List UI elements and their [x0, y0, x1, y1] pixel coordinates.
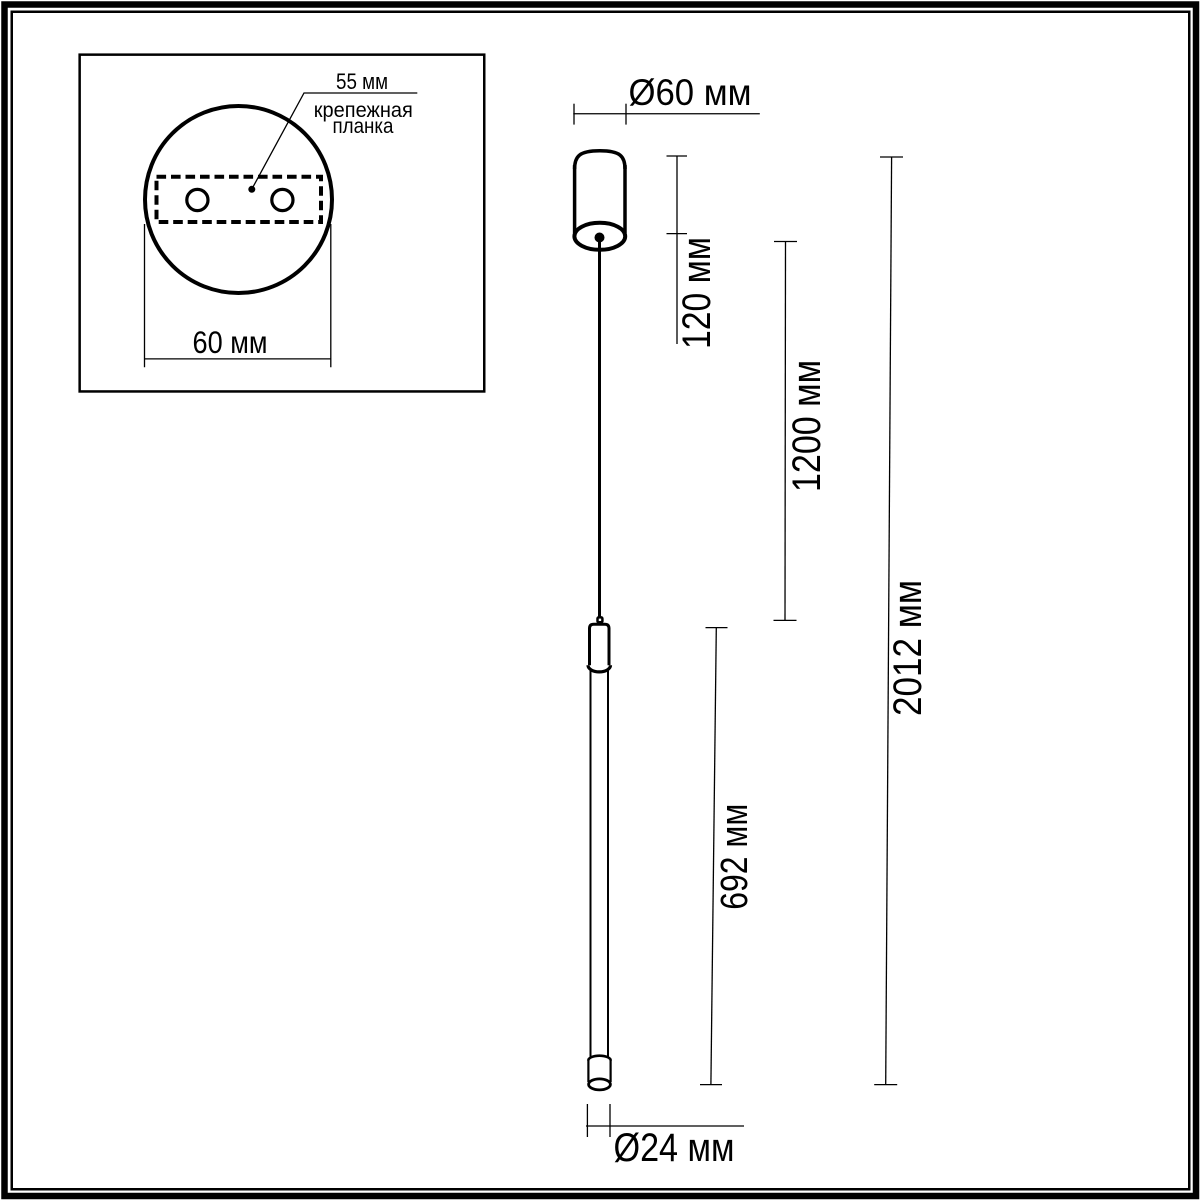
- svg-text:планка: планка: [333, 114, 394, 138]
- svg-text:120 мм: 120 мм: [675, 237, 719, 349]
- svg-text:1200 мм: 1200 мм: [785, 360, 829, 492]
- svg-text:55 мм: 55 мм: [336, 69, 388, 94]
- svg-text:692 мм: 692 мм: [714, 804, 756, 910]
- svg-text:60 мм: 60 мм: [193, 324, 268, 360]
- svg-text:Ø24 мм: Ø24 мм: [614, 1126, 735, 1170]
- svg-text:Ø60 мм: Ø60 мм: [629, 72, 752, 113]
- svg-text:2012 мм: 2012 мм: [886, 580, 930, 716]
